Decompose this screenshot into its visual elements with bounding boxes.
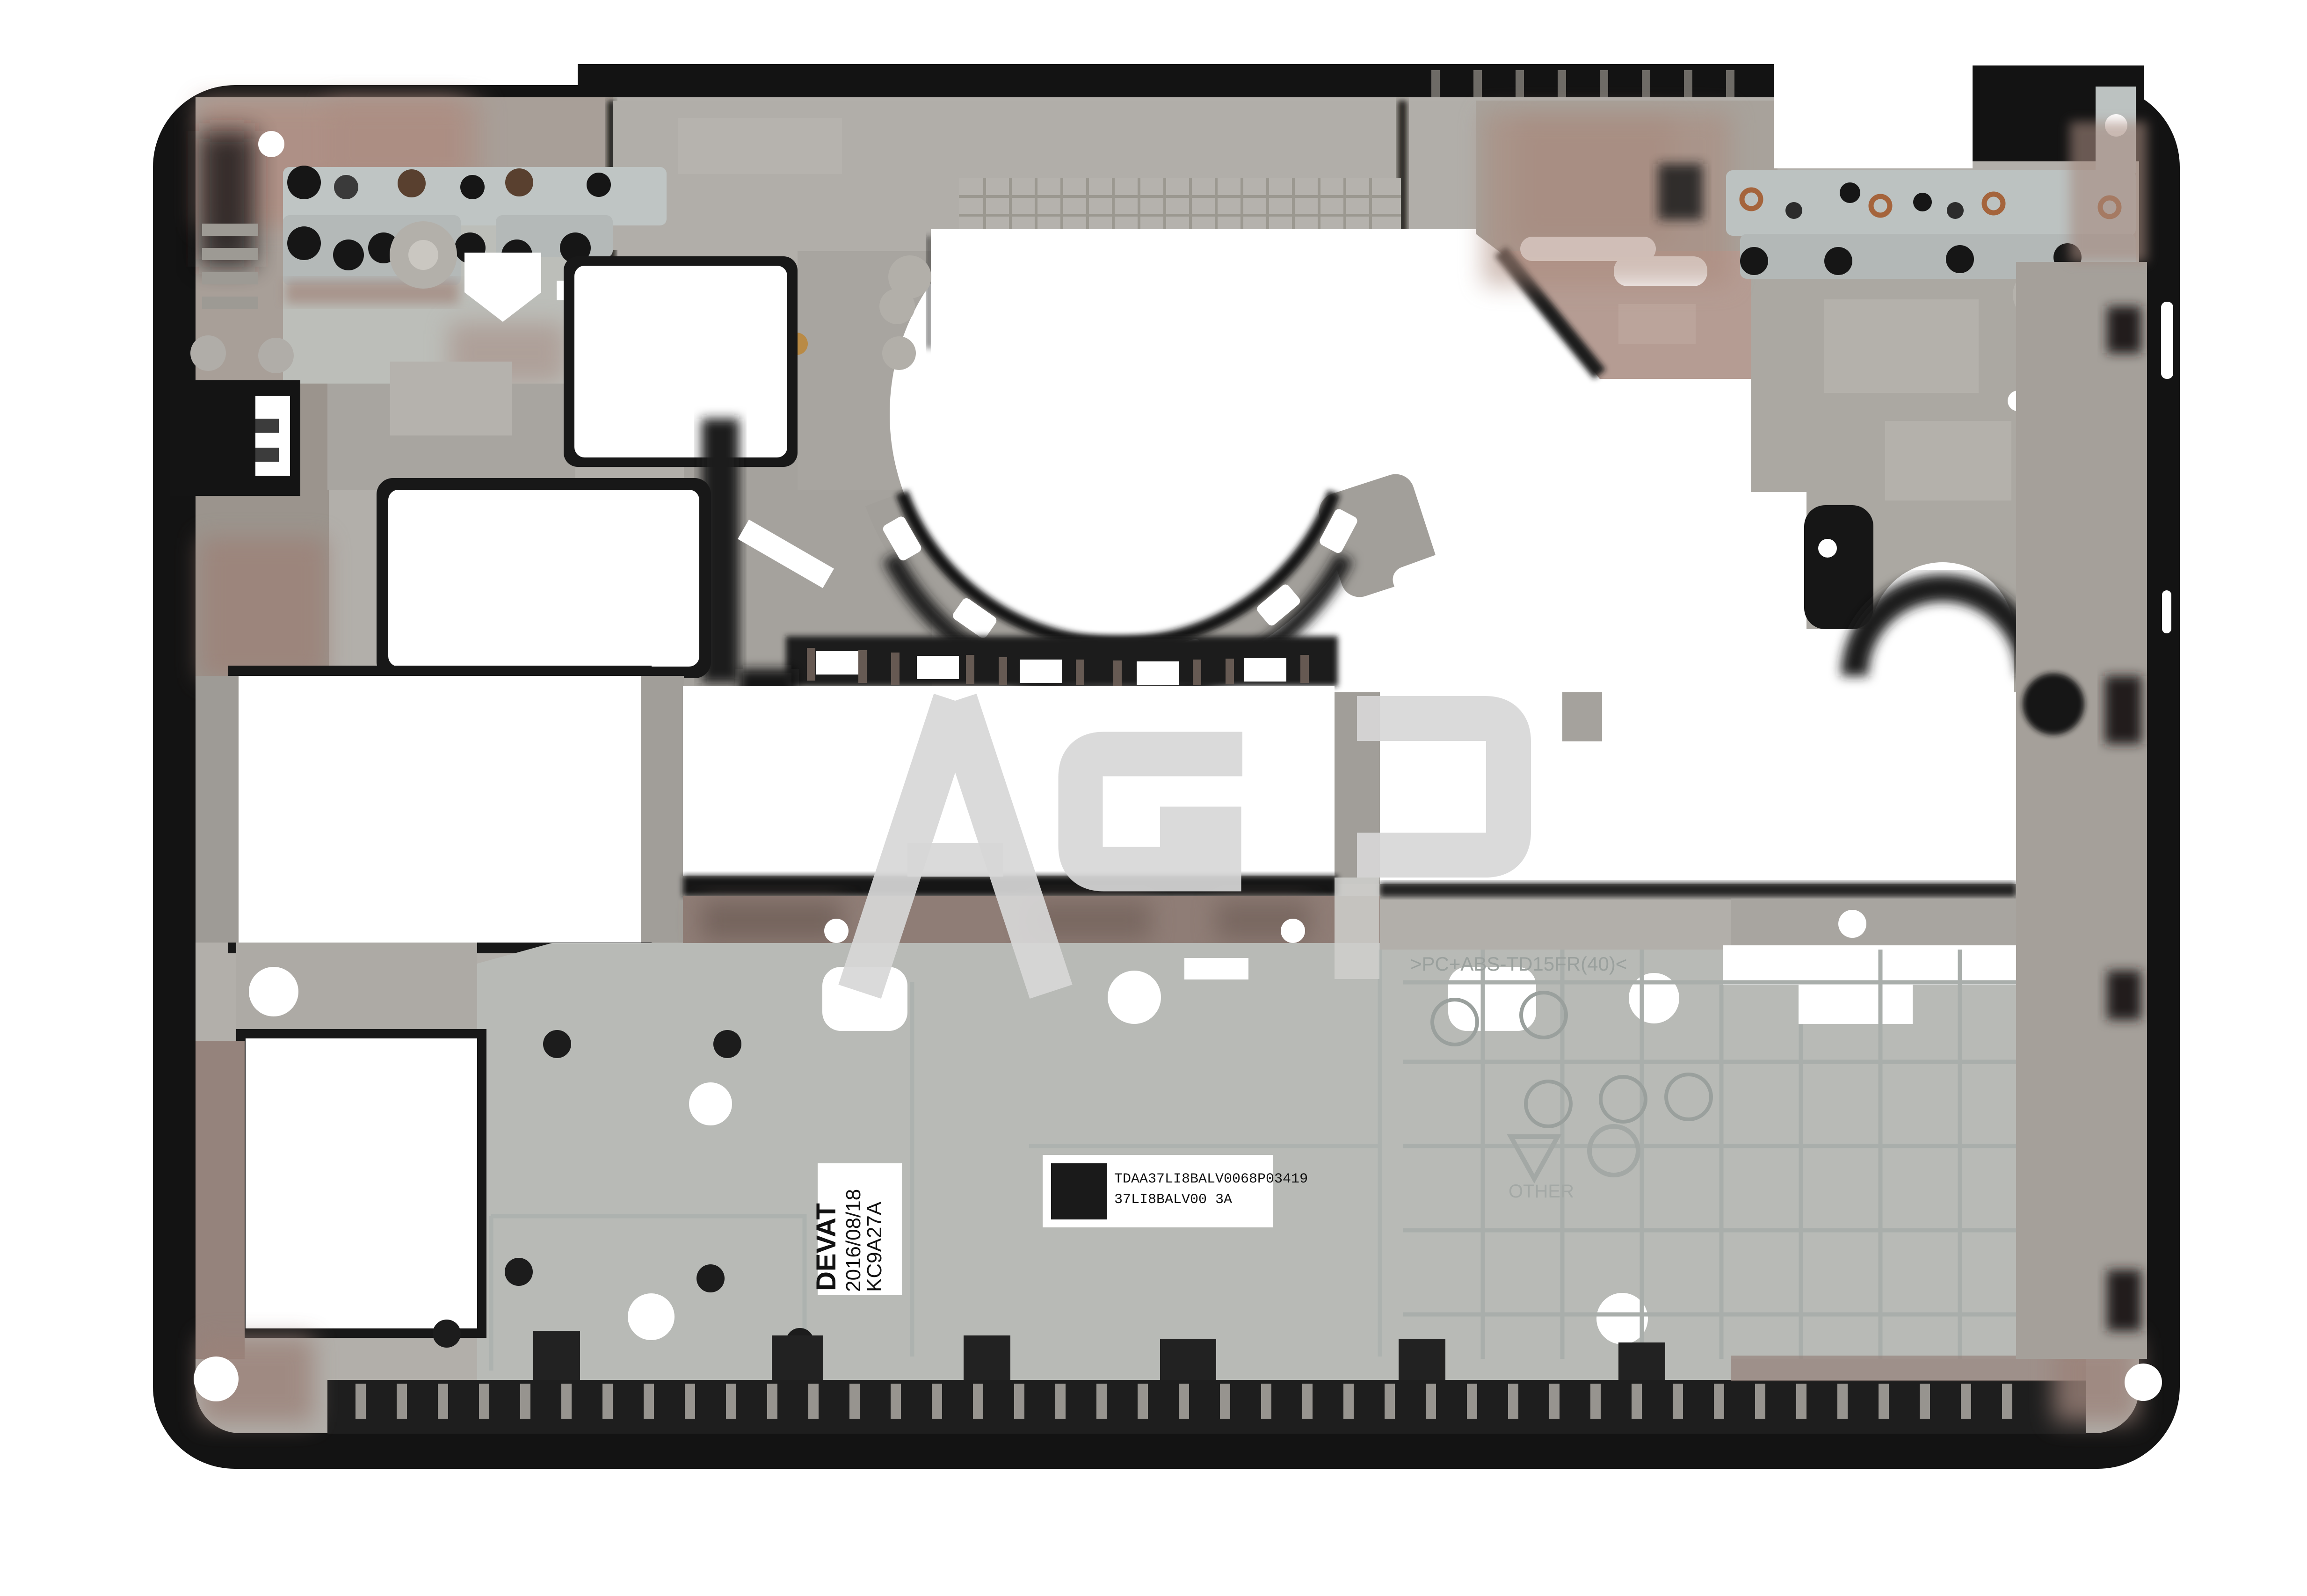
svg-text:KC9A27A: KC9A27A [863,1201,886,1292]
svg-text:TDAA37LI8BALV0068P03419: TDAA37LI8BALV0068P03419 [1114,1171,1308,1187]
svg-text:2016/08/18: 2016/08/18 [842,1189,865,1292]
svg-text:OTHER: OTHER [1509,1181,1574,1202]
svg-text:DEVAT: DEVAT [811,1203,842,1291]
svg-text:37LI8BALV00 3A: 37LI8BALV00 3A [1114,1192,1232,1208]
svg-text:>PC+ABS-TD15FR(40)<: >PC+ABS-TD15FR(40)< [1410,953,1627,975]
